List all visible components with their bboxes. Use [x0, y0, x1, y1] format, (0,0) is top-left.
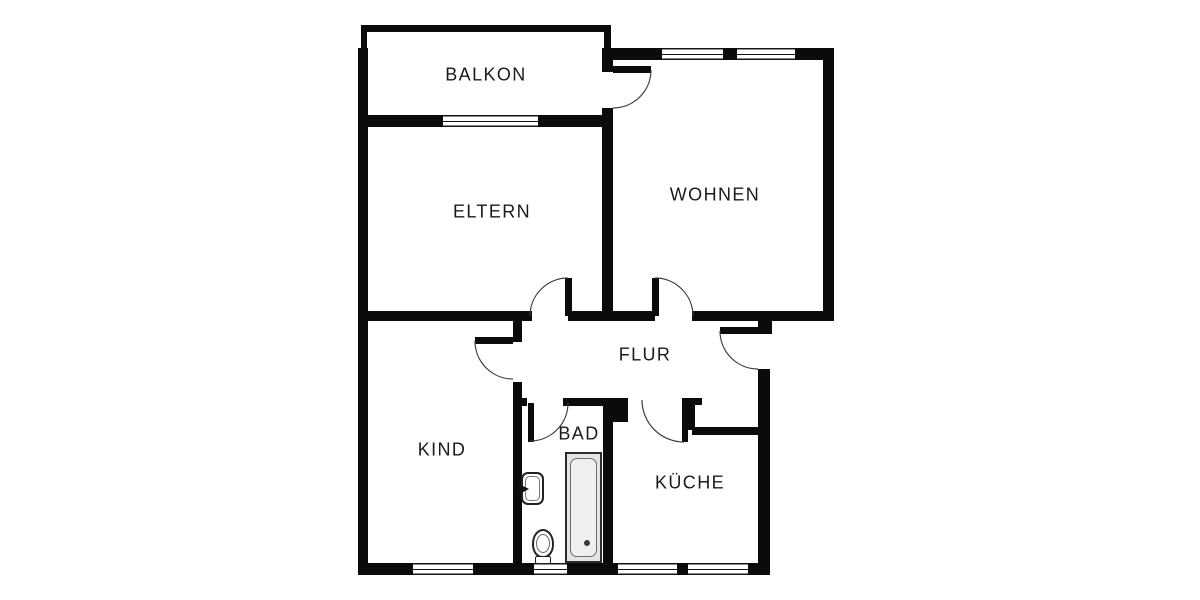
faucet-icon	[519, 484, 529, 494]
room-label-kueche: KÜCHE	[655, 473, 725, 494]
bathtub-drain	[584, 540, 590, 546]
room-label-eltern: ELTERN	[453, 202, 531, 223]
door-swing-wohnen	[655, 278, 693, 316]
room-label-kind: KIND	[418, 440, 467, 461]
toilet-icon	[532, 529, 554, 558]
room-label-flur: FLUR	[619, 345, 672, 366]
room-label-balkon: BALKON	[445, 65, 526, 86]
room-label-bad: BAD	[558, 424, 599, 445]
toilet-cistern	[535, 556, 551, 564]
door-swing-balkon	[613, 70, 651, 108]
bathtub-icon	[565, 452, 602, 563]
door-swing-kueche	[642, 400, 684, 442]
door-swing-kind	[475, 341, 513, 379]
door-swing-entrance	[720, 331, 758, 369]
toilet-seat	[536, 534, 550, 553]
door-swing-eltern	[530, 278, 568, 316]
floor-plan: BALKON ELTERN WOHNEN FLUR KIND BAD KÜCHE	[0, 0, 1200, 600]
room-label-wohnen: WOHNEN	[670, 185, 760, 206]
